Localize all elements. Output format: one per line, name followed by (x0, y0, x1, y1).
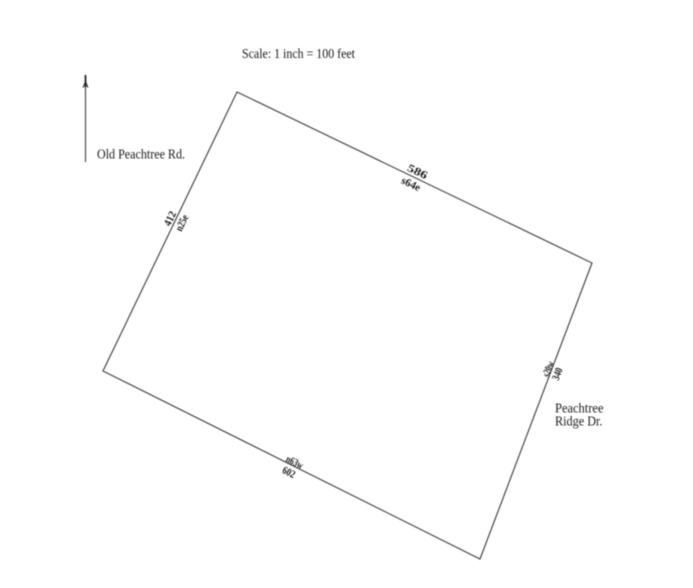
svg-text:Ridge Dr.: Ridge Dr. (555, 415, 603, 430)
svg-text:Old Peachtree Rd.: Old Peachtree Rd. (97, 148, 185, 163)
svg-text:Scale: 1 inch = 100 feet: Scale: 1 inch = 100 feet (242, 47, 355, 62)
